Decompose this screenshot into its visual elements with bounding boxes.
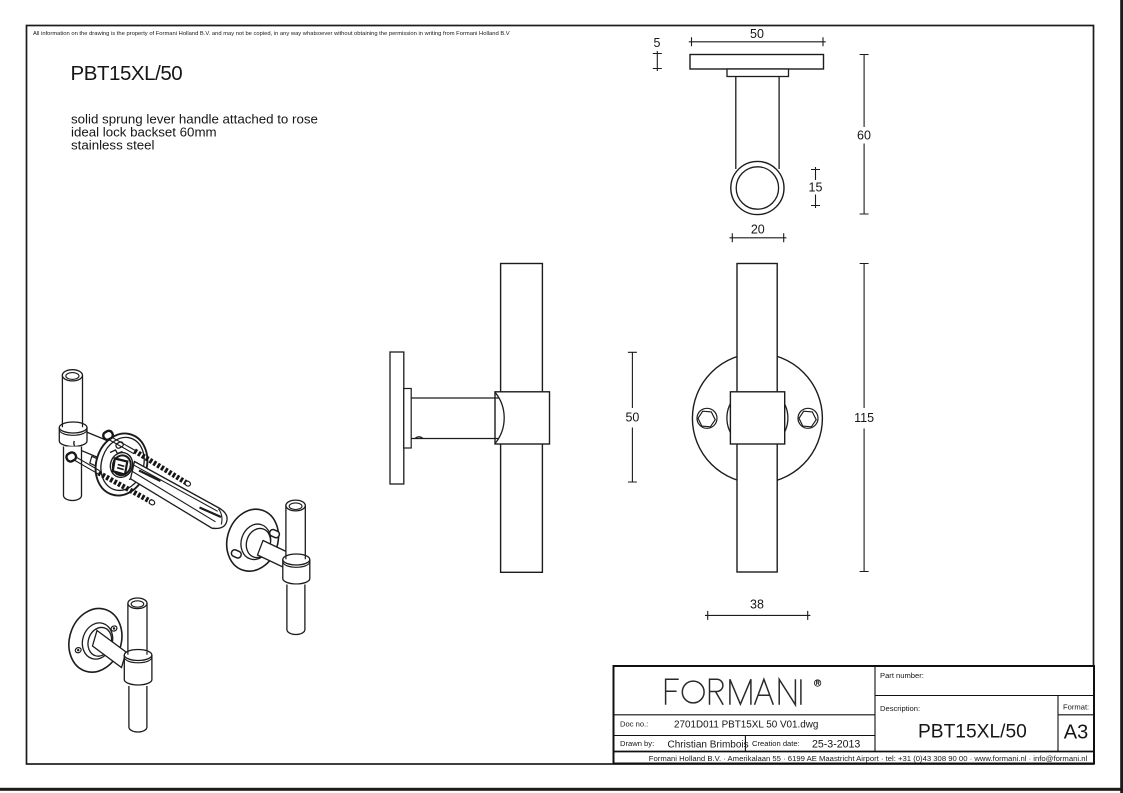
svg-text:A3: A3	[1064, 722, 1088, 744]
svg-text:stainless steel: stainless steel	[71, 138, 155, 153]
svg-text:Format:: Format:	[1063, 703, 1089, 712]
svg-text:25-3-2013: 25-3-2013	[812, 739, 860, 751]
svg-text:PBT15XL/50: PBT15XL/50	[918, 722, 1027, 743]
svg-text:20: 20	[751, 223, 765, 237]
svg-text:5: 5	[654, 36, 661, 50]
svg-text:50: 50	[625, 411, 639, 425]
svg-text:50: 50	[750, 27, 764, 41]
svg-text:PBT15XL/50: PBT15XL/50	[71, 62, 183, 85]
svg-text:2701D011 PBT15XL 50 V01.dwg: 2701D011 PBT15XL 50 V01.dwg	[674, 720, 818, 731]
svg-text:Drawn by:: Drawn by:	[620, 739, 654, 748]
svg-text:Doc no.:: Doc no.:	[620, 720, 648, 729]
svg-text:60: 60	[857, 129, 871, 143]
svg-text:38: 38	[750, 598, 764, 612]
svg-text:Formani Holland B.V. · Ameri: Formani Holland B.V. · Amerikalaan 55 · …	[649, 754, 1088, 763]
svg-text:115: 115	[854, 411, 874, 425]
svg-text:Description:: Description:	[880, 704, 920, 713]
svg-text:15: 15	[809, 181, 823, 195]
svg-text:Part number:: Part number:	[880, 671, 924, 680]
svg-text:Christian Brimbois: Christian Brimbois	[668, 740, 749, 751]
svg-text:Creation date:: Creation date:	[752, 739, 800, 748]
svg-text:All information on the drawing: All information on the drawing is the pr…	[33, 31, 510, 37]
